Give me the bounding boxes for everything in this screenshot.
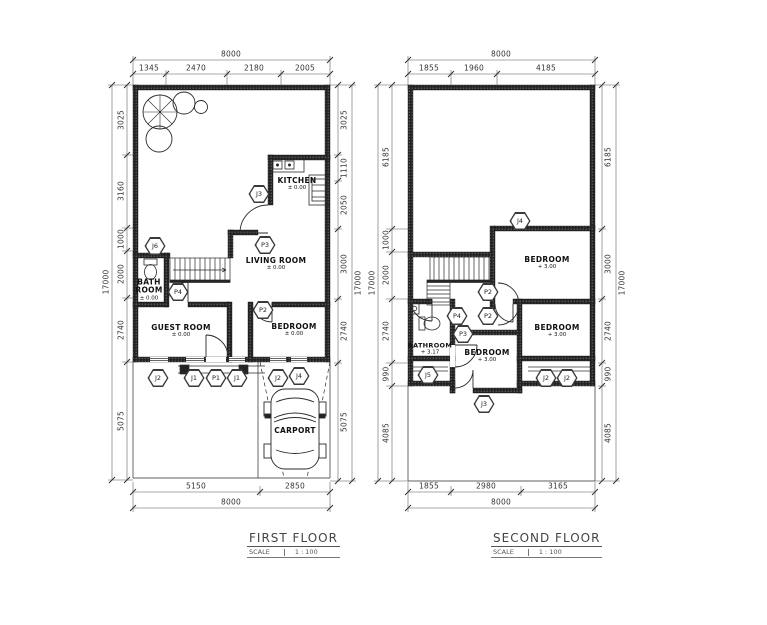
dim-label: 2740: [340, 321, 349, 341]
second-floor-deck: [408, 386, 595, 481]
opening-marker: J2: [268, 369, 289, 387]
floor-plan-sheet: 8000 1345 2470 2180 2005 5150 2850 8000 …: [0, 0, 767, 625]
opening-marker: P4: [447, 307, 468, 325]
opening-marker: J1: [227, 369, 248, 387]
dim-label: 5150: [186, 482, 206, 491]
second-floor-title-block: SECOND FLOOR SCALE 1 : 100: [491, 531, 602, 558]
first-floor-stairs: [170, 258, 230, 283]
opening-marker: J1: [184, 369, 205, 387]
scale-divider: [284, 549, 285, 556]
dim-label: 2005: [295, 64, 315, 73]
dim-label: 1960: [464, 64, 484, 73]
first-floor-title-block: FIRST FLOOR SCALE 1 : 100: [247, 531, 340, 558]
dim-label: 990: [382, 367, 391, 382]
dim-label: 1000: [117, 229, 126, 249]
room-label-bedroom-a: BEDROOM+ 3.00: [524, 256, 569, 270]
opening-marker: J2: [536, 369, 557, 387]
room-label-carport: CARPORT: [272, 427, 318, 435]
scale-value: 1 : 100: [295, 548, 318, 556]
opening-marker: J2: [148, 369, 169, 387]
opening-marker: J2: [557, 369, 578, 387]
dim-label: 6185: [604, 147, 613, 167]
dim-label: 8000: [491, 50, 511, 59]
room-label-bathroom-sf: BATHROOM+ 3.17: [408, 342, 452, 355]
room-label-bath-room: BATH ROOM± 0.00: [133, 279, 165, 302]
dim-label: 2470: [186, 64, 206, 73]
dim-label: 5075: [117, 411, 126, 431]
dim-label: 8000: [221, 50, 241, 59]
room-label-bedroom-c: BEDROOM+ 3.00: [464, 349, 509, 363]
plan-title: FIRST FLOOR: [247, 531, 340, 547]
plan-scale: SCALE 1 : 100: [247, 547, 340, 558]
dim-label: 2740: [604, 321, 613, 341]
dim-label: 17000: [102, 270, 111, 295]
dim-label: 2000: [117, 264, 126, 284]
dim-label: 3025: [117, 110, 126, 130]
opening-marker: P2: [478, 307, 499, 325]
tree-symbols: [143, 92, 208, 152]
dim-label: 2180: [244, 64, 264, 73]
opening-marker: J4: [289, 367, 310, 385]
scale-label: SCALE: [493, 548, 514, 556]
dim-label: 1855: [419, 482, 439, 491]
dim-label: 6185: [382, 147, 391, 167]
opening-marker: P4: [168, 283, 189, 301]
dim-label: 1855: [419, 64, 439, 73]
dim-label: 3160: [117, 181, 126, 201]
dim-label: 3000: [340, 254, 349, 274]
dim-label: 8000: [491, 498, 511, 507]
plan-scale: SCALE 1 : 100: [491, 547, 602, 558]
dim-label: 5075: [340, 412, 349, 432]
dim-label: 2740: [382, 321, 391, 341]
dim-label: 17000: [618, 271, 627, 296]
dim-label: 2000: [382, 265, 391, 285]
dim-label: 17000: [368, 271, 377, 296]
dim-label: 3165: [548, 482, 568, 491]
opening-marker: P3: [453, 325, 474, 343]
dim-label: 2850: [285, 482, 305, 491]
opening-marker: P2: [478, 283, 499, 301]
plan-title: SECOND FLOOR: [491, 531, 602, 547]
dim-label: 3025: [340, 110, 349, 130]
dim-label: 4085: [382, 423, 391, 443]
opening-marker: J4: [510, 212, 531, 230]
dim-label: 990: [604, 367, 613, 382]
opening-marker: J6: [145, 237, 166, 255]
plan-linework: [0, 0, 767, 625]
dim-label: 2050: [340, 195, 349, 215]
room-label-bedroom-b: BEDROOM+ 3.00: [534, 324, 579, 338]
dim-label: 17000: [354, 271, 363, 296]
opening-marker: P3: [255, 236, 276, 254]
scale-value: 1 : 100: [539, 548, 562, 556]
opening-marker: J3: [249, 185, 270, 203]
room-label-living-room: LIVING ROOM± 0.00: [246, 257, 307, 271]
room-label-guest-room: GUEST ROOM± 0.00: [151, 324, 211, 338]
opening-marker: P2: [253, 301, 274, 319]
dim-label: 8000: [221, 498, 241, 507]
dim-label: 1345: [139, 64, 159, 73]
dim-label: 4185: [536, 64, 556, 73]
dim-label: 2740: [117, 320, 126, 340]
dim-label: 1110: [340, 158, 349, 178]
opening-marker: J3: [474, 395, 495, 413]
room-label-bedroom-ff: BEDROOM± 0.00: [271, 323, 316, 337]
room-label-kitchen: KITCHEN± 0.00: [278, 177, 317, 191]
opening-marker: J5: [418, 366, 439, 384]
opening-marker: P1: [206, 369, 227, 387]
scale-divider: [528, 549, 529, 556]
dim-label: 1000: [382, 230, 391, 250]
second-floor-fixtures: [410, 303, 440, 330]
dim-label: 2980: [476, 482, 496, 491]
dim-label: 4085: [604, 423, 613, 443]
dim-label: 3000: [604, 254, 613, 274]
scale-label: SCALE: [249, 548, 270, 556]
